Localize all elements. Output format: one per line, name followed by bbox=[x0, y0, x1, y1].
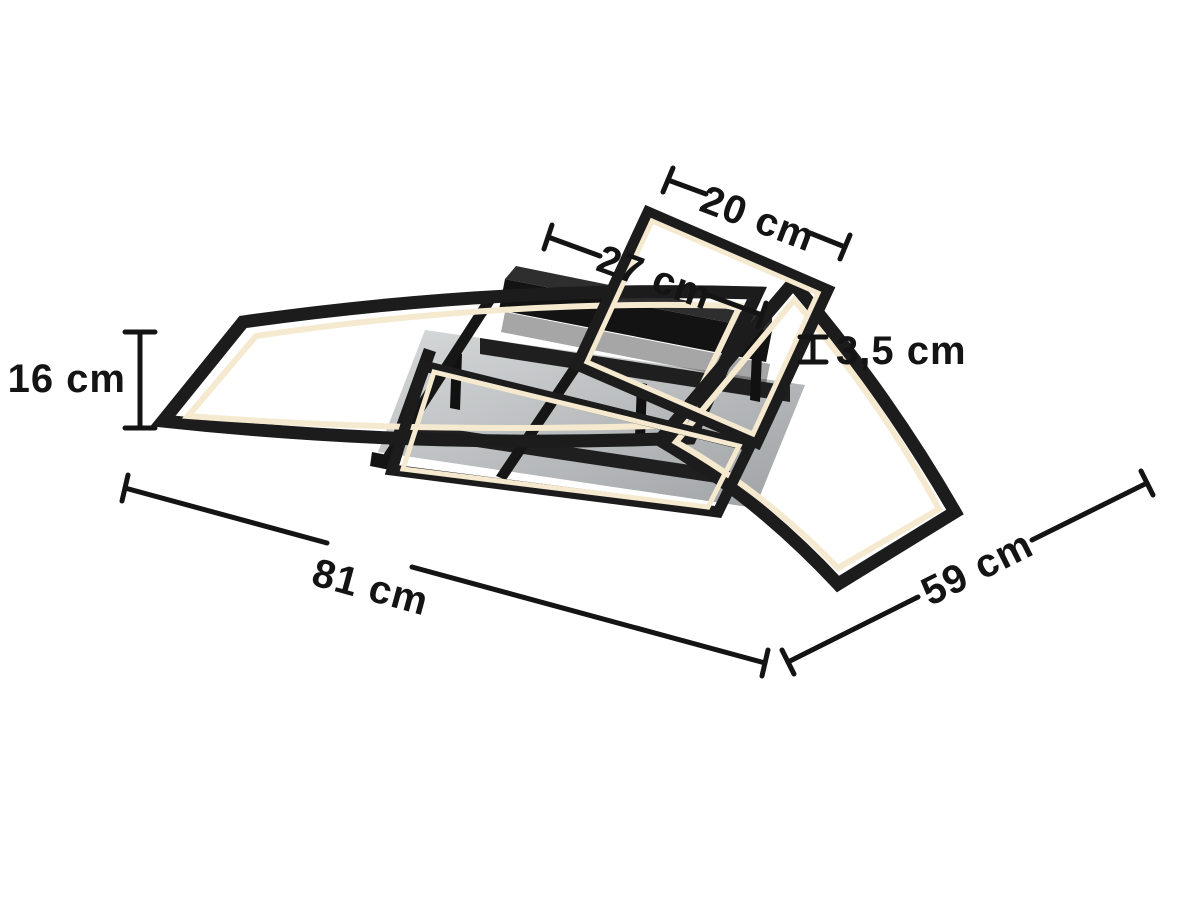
dim-59-line-left bbox=[788, 597, 918, 662]
dim-81-line-left bbox=[125, 488, 327, 543]
diagram-canvas: 20 cm 27 cm 3,5 cm 1 bbox=[0, 0, 1200, 901]
dimension-fixture-height: 16 cm bbox=[8, 332, 155, 428]
dim-81-tick-right bbox=[762, 650, 768, 676]
dimension-label-59cm: 59 cm bbox=[914, 522, 1040, 614]
dim-59-line-right bbox=[1032, 483, 1147, 540]
dim-20-line-left bbox=[668, 180, 706, 194]
dimension-profile-height: 3,5 cm bbox=[800, 329, 967, 373]
dimension-label-81cm: 81 cm bbox=[308, 551, 434, 625]
product-dimension-diagram: 20 cm 27 cm 3,5 cm 1 bbox=[0, 0, 1200, 901]
dim-20-line-right bbox=[810, 233, 845, 247]
dim-81-line-right bbox=[412, 567, 765, 663]
dimension-overall-depth: 59 cm bbox=[782, 471, 1153, 674]
dim-81-tick-left bbox=[122, 475, 128, 501]
dimension-label-35cm: 3,5 cm bbox=[836, 329, 967, 373]
rod-vertical-right bbox=[750, 352, 762, 402]
dimension-label-16cm: 16 cm bbox=[8, 357, 126, 401]
dim-27-line-left bbox=[548, 237, 600, 256]
dimension-top-frame-width: 20 cm bbox=[663, 168, 850, 260]
